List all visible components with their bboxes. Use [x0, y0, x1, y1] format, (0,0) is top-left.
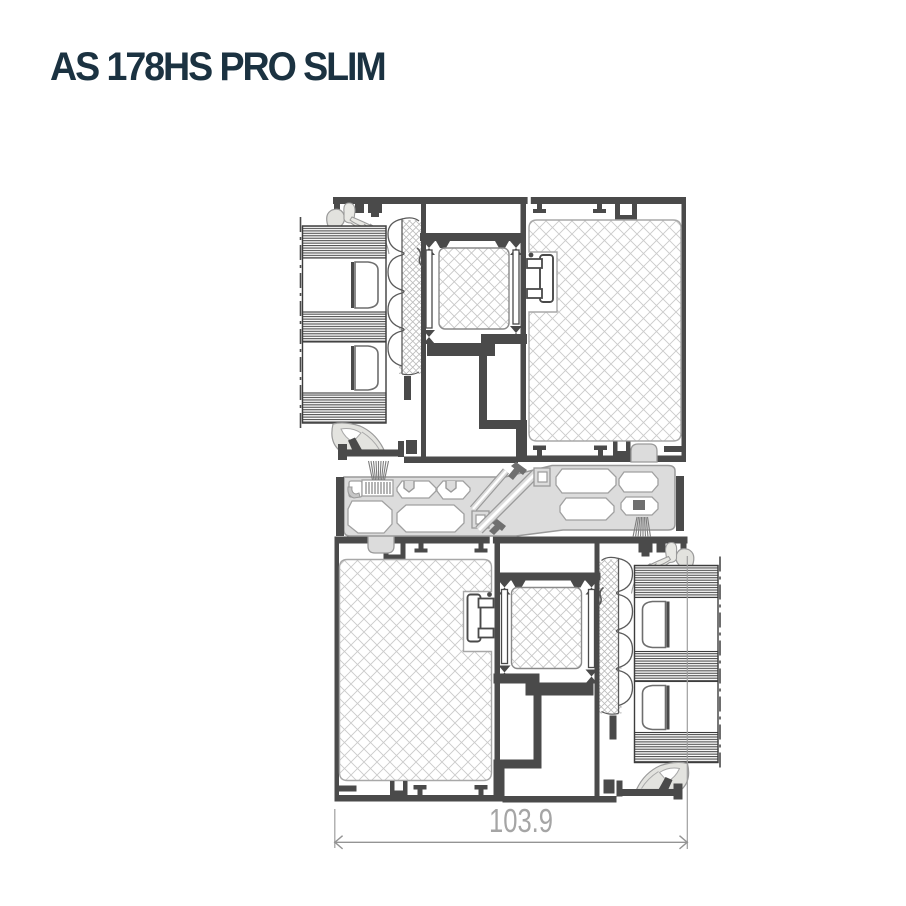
svg-text:103.9: 103.9 [489, 802, 553, 839]
